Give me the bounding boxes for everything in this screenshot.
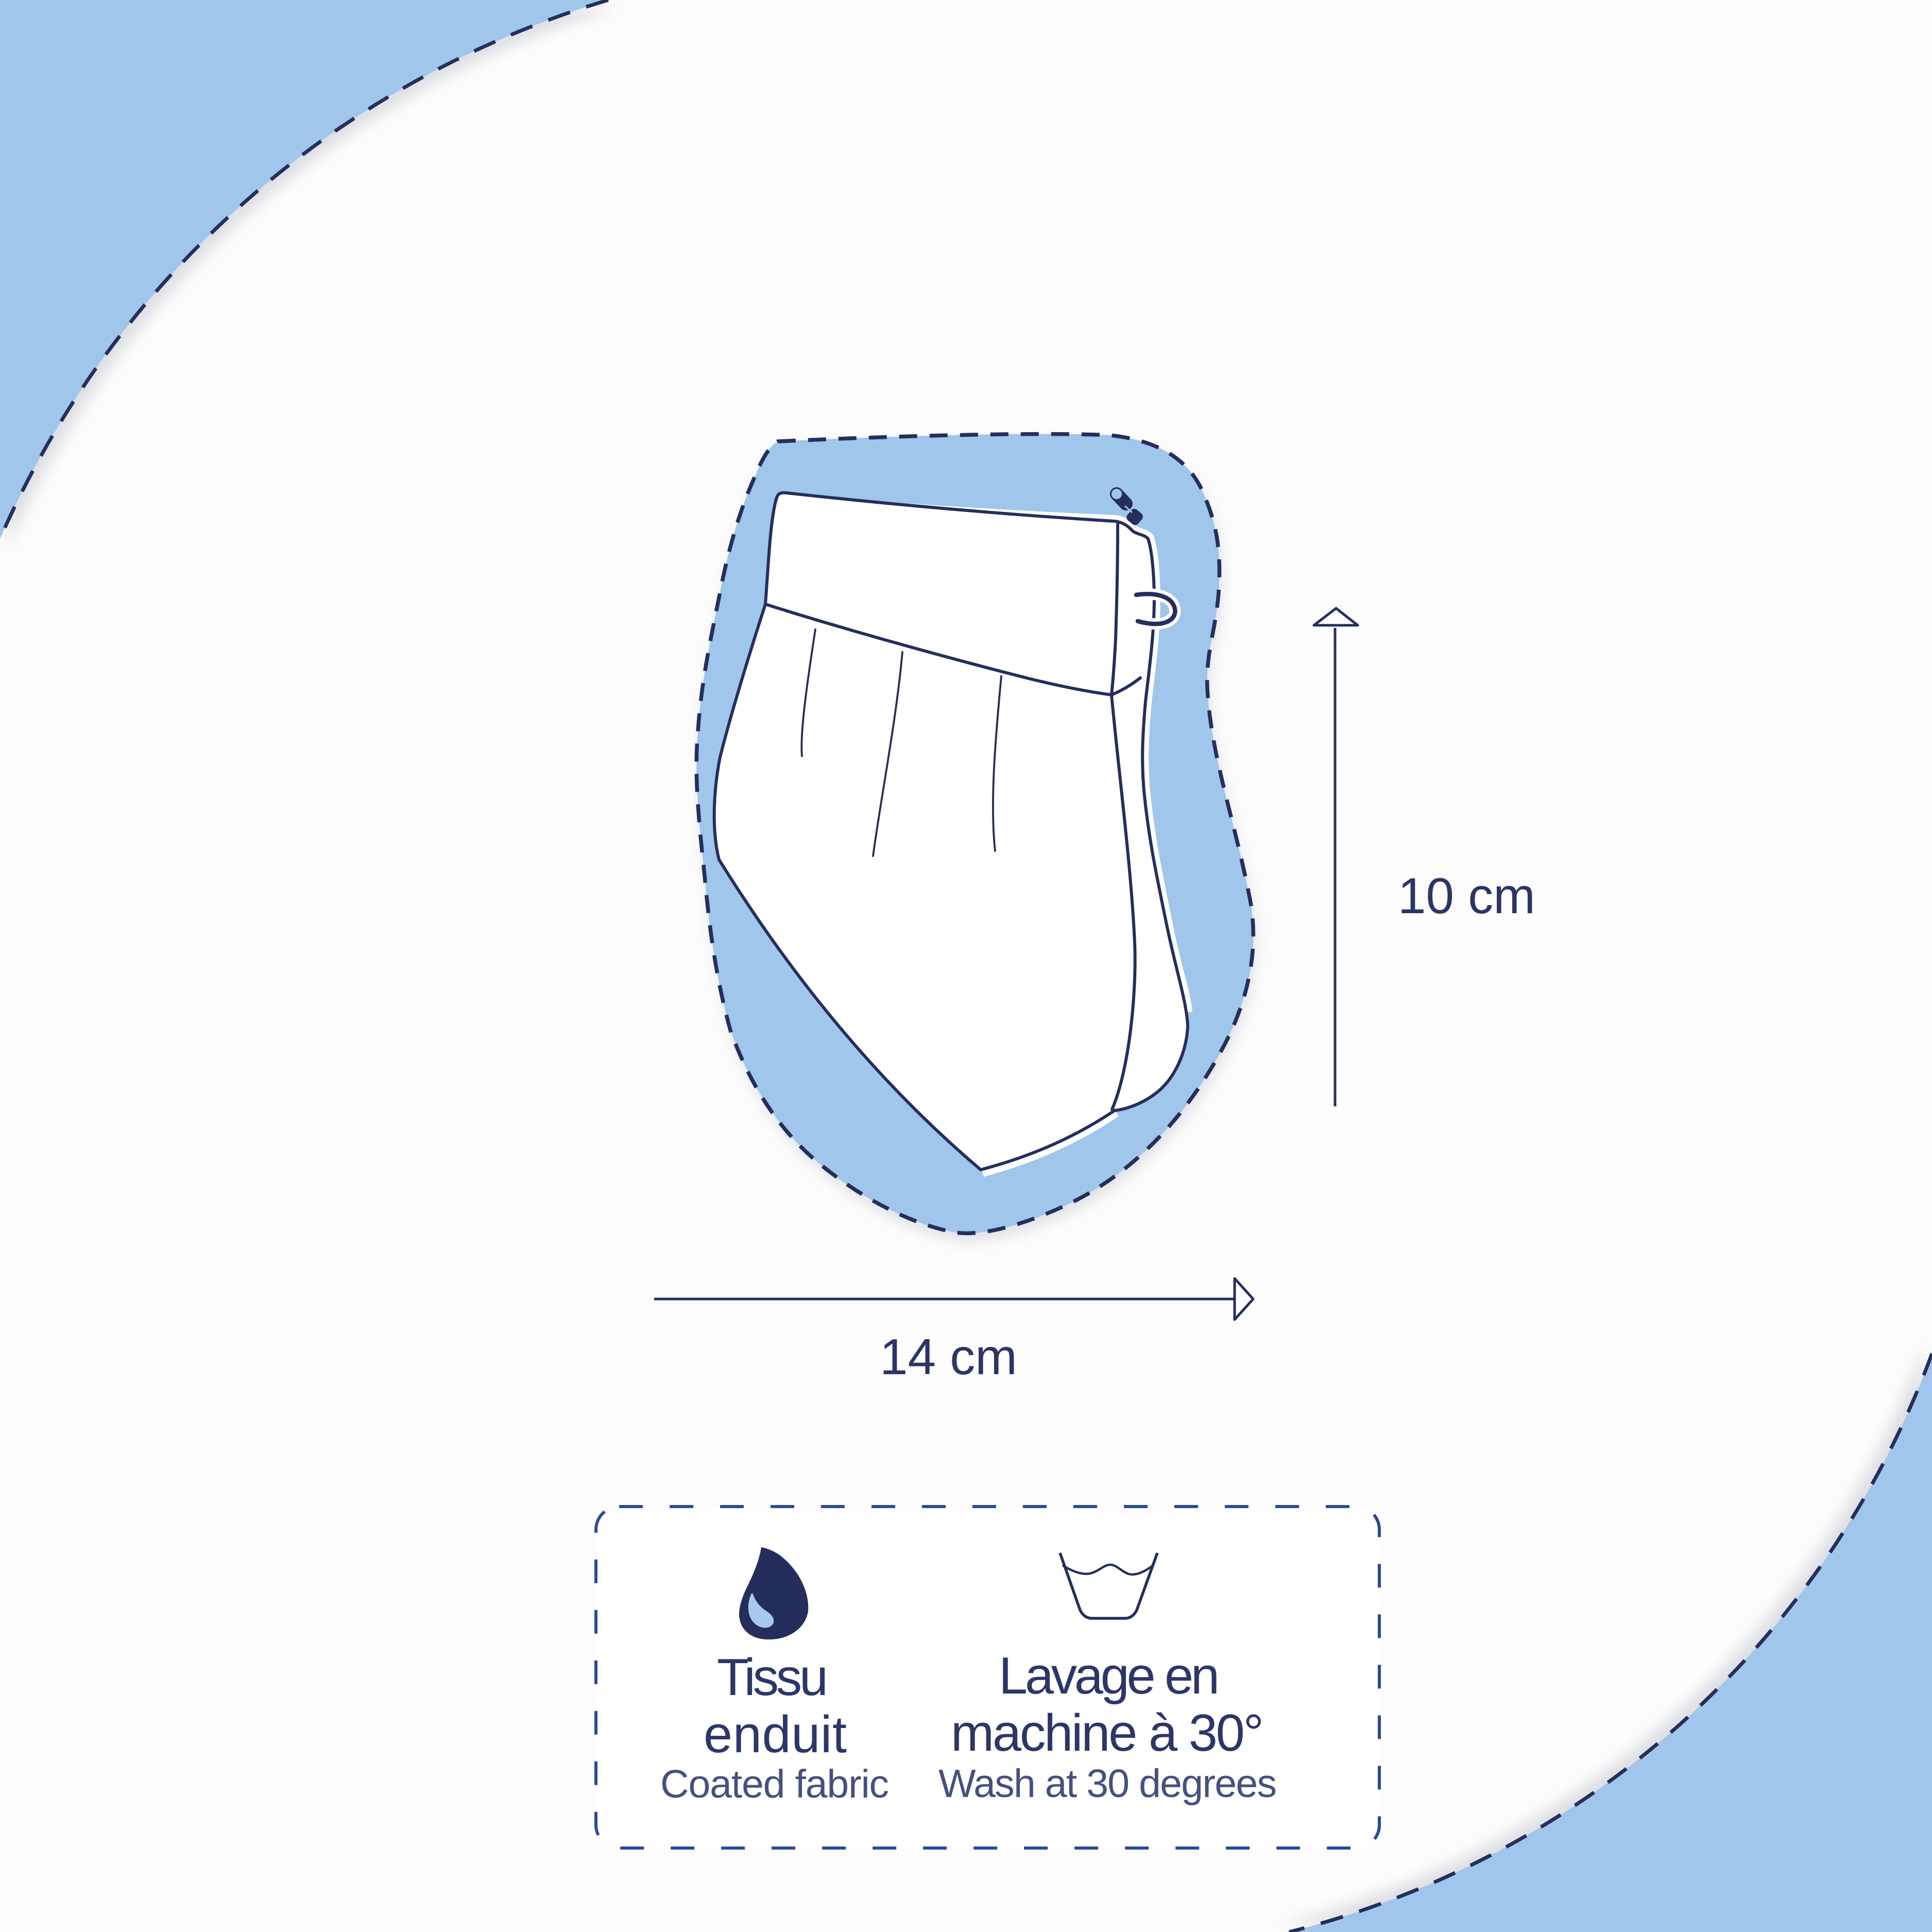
svg-text:Wash at 30 degrees: Wash at 30 degrees xyxy=(938,1762,1277,1806)
svg-text:Lavage en: Lavage en xyxy=(999,1647,1220,1705)
svg-text:Tissu: Tissu xyxy=(717,1649,828,1706)
svg-text:enduit: enduit xyxy=(704,1706,847,1764)
svg-text:14 cm: 14 cm xyxy=(880,1328,1017,1385)
svg-text:Coated fabric: Coated fabric xyxy=(660,1762,889,1806)
svg-text:machine à 30°: machine à 30° xyxy=(951,1704,1264,1762)
svg-text:10 cm: 10 cm xyxy=(1398,867,1535,924)
